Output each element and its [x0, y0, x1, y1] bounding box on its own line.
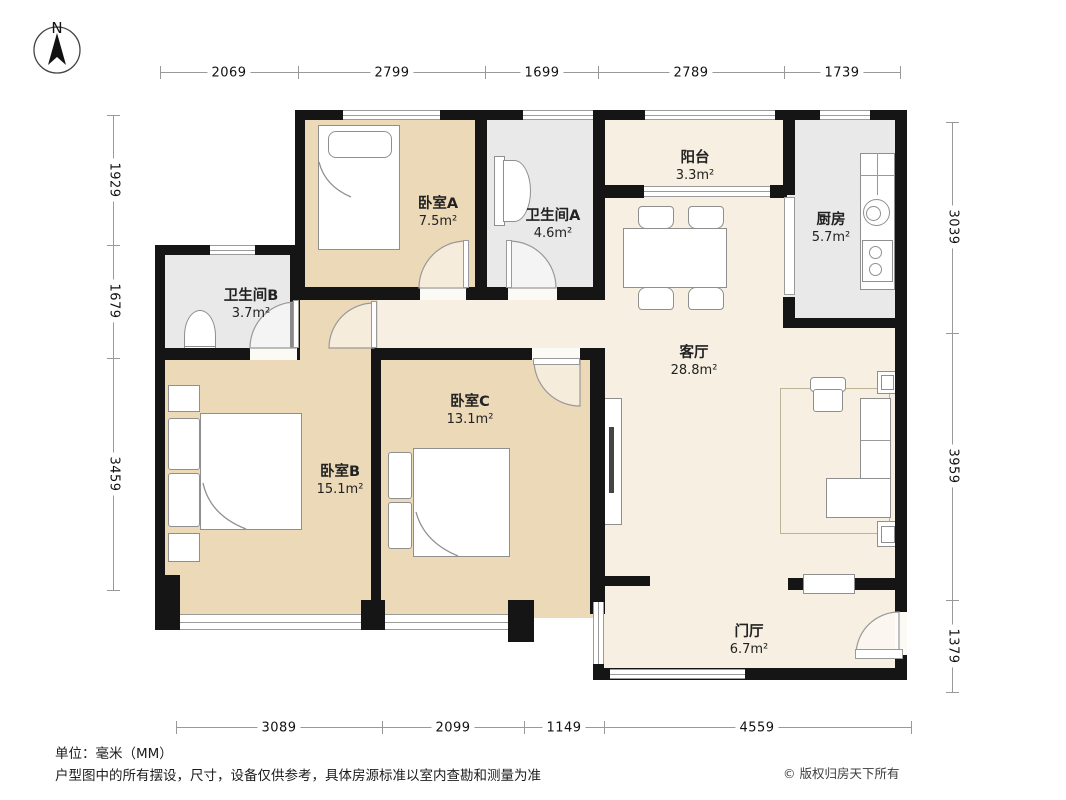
dim-top-5: 1739 [820, 66, 863, 81]
dim-tick [598, 66, 599, 79]
console-table [803, 574, 855, 594]
window-bathroom-a [523, 110, 593, 120]
dim-top-4: 2789 [669, 66, 712, 81]
dim-bottom-1: 3089 [257, 721, 300, 736]
sofa-cushion-line [861, 440, 890, 441]
dim-tick [382, 721, 383, 734]
window-bedroom-a [343, 110, 440, 120]
dim-tick [485, 66, 486, 79]
dim-top-3: 1699 [520, 66, 563, 81]
dim-tick [946, 333, 959, 334]
side-table-inner [881, 375, 894, 390]
window-foyer-left [593, 602, 604, 664]
label-balcony: 阳台 3.3m² [676, 146, 715, 183]
stove-burner [869, 263, 882, 276]
dim-tick [604, 721, 605, 734]
label-foyer: 门厅 6.7m² [730, 620, 769, 657]
floorplan-page: N [0, 0, 1066, 800]
dim-tick [160, 66, 161, 79]
dim-tick [107, 358, 120, 359]
dim-bottom-2: 2099 [431, 721, 474, 736]
door-leaf-entry [855, 649, 903, 659]
wall-balcony-stub-left [600, 185, 644, 198]
door-leaf-bedroom-b [371, 301, 377, 348]
bedroom-b-entry-opening [300, 348, 371, 360]
dim-top-2: 2799 [370, 66, 413, 81]
dining-table [623, 228, 727, 288]
pillow-bedroom-a [328, 131, 392, 158]
disclaimer: 户型图中的所有摆设，尺寸，设备仅供参考，具体房源标准以室内查勘和测量为准 [55, 764, 541, 784]
door-leaf-bathroom-b [293, 300, 299, 348]
dim-bottom-4: 4559 [735, 721, 778, 736]
wall-kitchen-left-upper [783, 110, 795, 195]
window-bathroom-b [210, 245, 255, 255]
dim-tick [107, 115, 120, 116]
wall-corner-bedroom-b [155, 575, 180, 630]
dim-tick [946, 600, 959, 601]
tv [609, 427, 614, 493]
dining-chair [638, 206, 674, 229]
balcony-sliding-window [644, 186, 772, 197]
dim-tick [946, 122, 959, 123]
dim-right-2: 3959 [946, 444, 961, 487]
label-bathroom-b: 卫生间B 3.7m² [224, 284, 279, 321]
dim-left-3: 3459 [107, 452, 122, 495]
stove-burner [869, 246, 882, 259]
bedroom-a-door-gap [420, 287, 466, 300]
window-foyer-bottom [610, 669, 745, 679]
wall-kitchen-bottom [783, 318, 895, 328]
label-bedroom-b: 卧室B 15.1m² [317, 460, 364, 497]
bay-window-bedroom-b [180, 614, 368, 630]
headboard-cushion [388, 502, 412, 549]
kitchen-door-leaf [784, 197, 795, 295]
wall-right [895, 110, 907, 680]
dining-chair [688, 206, 724, 229]
bathroom-a-door-gap [508, 287, 557, 300]
dim-right-3: 1379 [946, 624, 961, 667]
wall-corner-divider-bottom [361, 600, 385, 630]
dim-tick [107, 590, 120, 591]
dim-left-2: 1679 [107, 279, 122, 322]
dim-top-1: 2069 [207, 66, 250, 81]
label-kitchen: 厨房 5.7m² [812, 208, 851, 245]
headboard-cushion [168, 418, 200, 470]
north-arrow-icon: N [28, 12, 88, 78]
counter-divider [877, 153, 878, 195]
dim-tick [176, 721, 177, 734]
dim-right-1: 3039 [946, 205, 961, 248]
dim-tick [784, 66, 785, 79]
label-bedroom-c: 卧室C 13.1m² [447, 390, 494, 427]
wall-bathroom-a-right [593, 110, 605, 300]
door-leaf-bedroom-a [463, 240, 469, 288]
dim-bottom-3: 1149 [542, 721, 585, 736]
dim-left-1: 1929 [107, 158, 122, 201]
armchair-seat [813, 389, 843, 412]
door-leaf-bedroom-c [533, 358, 580, 365]
sofa-chaise [826, 478, 891, 518]
dining-chair [688, 287, 724, 310]
window-balcony [645, 110, 775, 120]
wall-bedroom-b-c-divider [371, 358, 381, 614]
dim-tick [298, 66, 299, 79]
bed-double-bedroom-b [200, 413, 302, 530]
wall-corner-bedroom-c [508, 600, 534, 642]
bed-double-bedroom-c [413, 448, 510, 557]
side-table-inner [881, 526, 895, 543]
nightstand [168, 533, 200, 562]
dim-tick [107, 245, 120, 246]
wall-left [155, 245, 165, 590]
dim-tick [946, 692, 959, 693]
kitchen-sink-basin [866, 206, 881, 221]
north-needle [48, 33, 66, 65]
dim-tick [911, 721, 912, 734]
dining-chair [638, 287, 674, 310]
label-bathroom-a: 卫生间A 4.6m² [526, 204, 581, 241]
label-bedroom-a: 卧室A 7.5m² [418, 192, 458, 229]
nightstand [168, 385, 200, 412]
label-living-room: 客厅 28.8m² [671, 341, 718, 378]
headboard-cushion [388, 452, 412, 499]
copyright-notice: © 版权归房天下所有 [783, 763, 899, 782]
bay-window-bedroom-c [385, 614, 508, 630]
headboard-cushion [168, 473, 200, 527]
dim-tick [900, 66, 901, 79]
bathroom-b-door-gap [250, 348, 297, 360]
dim-tick [524, 721, 525, 734]
door-leaf-bathroom-a [506, 240, 512, 288]
wall-bedroom-a-bathroom-a [475, 110, 487, 300]
unit-note: 单位：毫米（MM） [55, 742, 173, 762]
window-kitchen [820, 110, 870, 120]
